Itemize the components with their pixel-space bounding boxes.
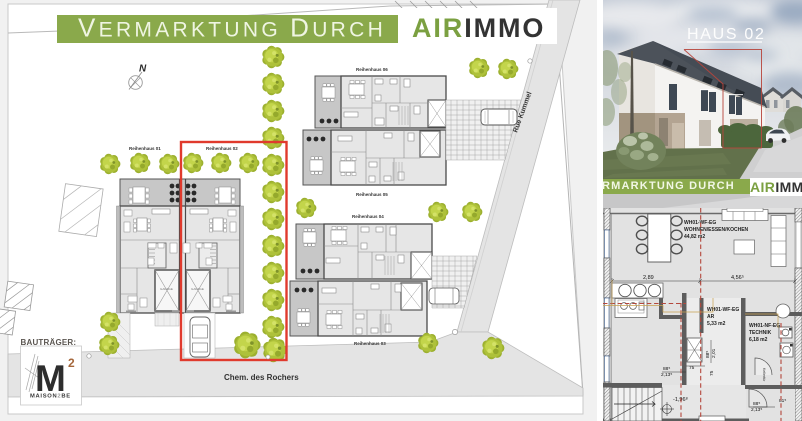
svg-text:Kellertür: Kellertür [762,368,766,382]
svg-text:WOHNEN/ESSEN/KOCHEN: WOHNEN/ESSEN/KOCHEN [684,227,749,233]
svg-text:TECHNIK: TECHNIK [749,330,772,336]
svg-text:MAISON2BE: MAISON2BE [30,394,71,400]
svg-text:2,13⁵: 2,13⁵ [661,372,672,378]
svg-text:WH01-NF-EG: WH01-NF-EG [749,323,780,329]
svg-text:Reihenhaus 05: Reihenhaus 05 [356,192,388,197]
svg-text:2,89: 2,89 [643,275,654,281]
svg-text:81⁵: 81⁵ [779,398,786,404]
svg-text:6,18 m2: 6,18 m2 [749,337,768,343]
svg-text:2: 2 [68,356,75,370]
svg-text:N: N [139,64,147,75]
svg-text:Reihenhaus 01: Reihenhaus 01 [129,146,161,151]
svg-text:2,13⁵: 2,13⁵ [751,407,762,413]
svg-text:AR: AR [707,314,715,320]
svg-text:88⁵: 88⁵ [663,366,670,372]
svg-text:HAUS 02: HAUS 02 [687,26,766,43]
svg-text:75: 75 [709,370,715,376]
svg-text:GARAGE: GARAGE [191,287,204,291]
svg-text:-1,96⁸: -1,96⁸ [673,396,688,403]
svg-text:4,56⁵: 4,56⁵ [731,274,744,281]
svg-text:88⁵: 88⁵ [753,401,760,407]
svg-text:88⁵: 88⁵ [705,351,711,358]
svg-text:AIRIMMO: AIRIMMO [412,13,545,43]
svg-text:Reihenhaus 02: Reihenhaus 02 [206,146,238,151]
svg-text:Chem. des Rochers: Chem. des Rochers [224,373,299,382]
svg-text:Reihenhaus 06: Reihenhaus 06 [356,67,388,72]
svg-text:2,01: 2,01 [711,348,717,358]
svg-text:44,82 m2: 44,82 m2 [684,234,705,240]
svg-text:GARAGE: GARAGE [160,287,173,291]
svg-text:Reihenhaus 04: Reihenhaus 04 [352,214,384,219]
svg-text:Reihenhaus 03: Reihenhaus 03 [354,341,386,346]
svg-text:5,33 m2: 5,33 m2 [707,321,726,327]
